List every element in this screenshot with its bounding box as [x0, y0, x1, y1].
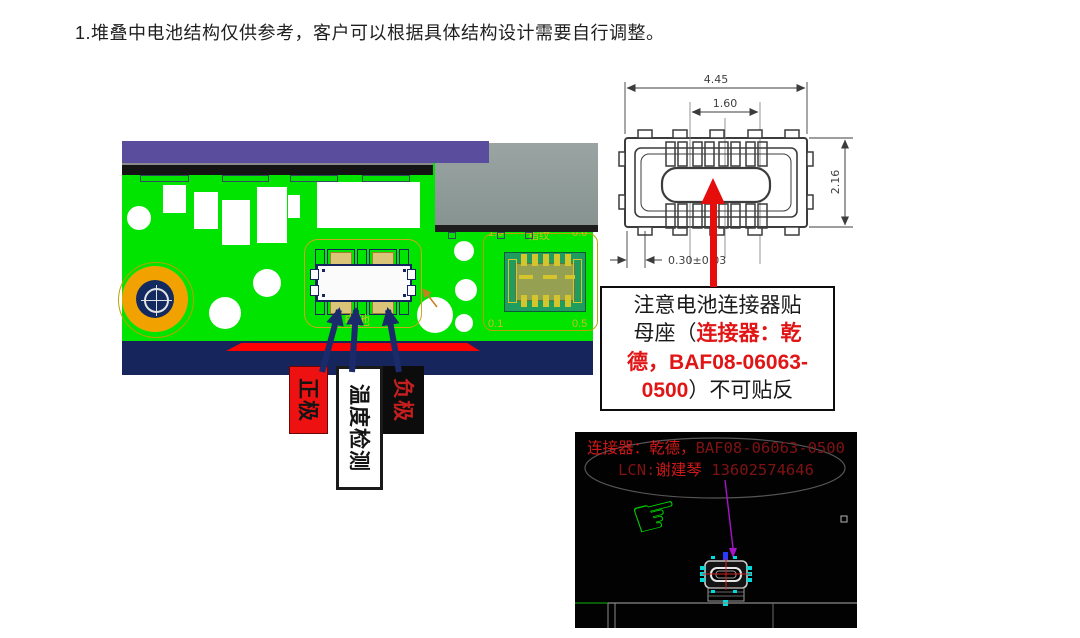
- silkscreen-label: 电池: [344, 310, 370, 329]
- component-outline: [222, 200, 250, 245]
- page-title: 1.堆叠中电池结构仅供参考，客户可以根据具体结构设计需要自行调整。: [75, 19, 665, 45]
- document-page: 1.堆叠中电池结构仅供参考，客户可以根据具体结构设计需要自行调整。: [0, 0, 1080, 638]
- dim-width-label: 4.45: [704, 73, 729, 86]
- battery-cell-edge: [435, 225, 598, 232]
- pad-notch: [222, 175, 269, 182]
- label-positive: 正极: [290, 367, 327, 433]
- drill-hole: [209, 297, 241, 329]
- connector-tab: [310, 285, 319, 296]
- position-marker-icon: [144, 288, 169, 313]
- board-red-gasket: [226, 343, 480, 351]
- component-outline: [317, 182, 420, 228]
- silkscreen-label: 0.5: [572, 318, 587, 330]
- fingerprint-connector-body: [504, 252, 586, 312]
- dim-pitch-label: 1.60: [713, 97, 738, 110]
- label-negative-text: 负极: [389, 378, 419, 422]
- pad-tick: [448, 232, 456, 239]
- cad-screenshot: 连接器：乾德，BAF08-06063-0500LCN:谢建琴 136025746…: [575, 432, 857, 628]
- component-outline: [194, 192, 218, 229]
- drill-hole: [454, 241, 474, 261]
- battery-connector-body: [316, 264, 412, 302]
- cad-connector-footprint: [700, 552, 752, 606]
- dim-height-label: 2.16: [829, 170, 842, 195]
- callout-arrow-stem: [710, 202, 717, 287]
- label-positive-text: 正极: [294, 378, 324, 422]
- label-temp-sense: 温度检测: [337, 367, 382, 489]
- pad-tick: [497, 232, 505, 239]
- pad-notch: [362, 175, 410, 182]
- drill-hole: [417, 297, 453, 333]
- pad-notch: [290, 175, 338, 182]
- connector-note-box: 注意电池连接器贴母座（连接器：乾德，BAF08-06063-0500）不可贴反: [600, 286, 835, 411]
- connector-tab: [407, 269, 416, 280]
- connector-dimension-drawing: 4.45 1.60 2.16 0.30±0.03: [606, 68, 911, 280]
- cad-select-square: [841, 516, 847, 522]
- connector-tab: [407, 285, 416, 296]
- connector-tab: [310, 269, 319, 280]
- component-outline: [163, 185, 186, 213]
- drill-hole: [455, 314, 473, 332]
- label-temp-sense-text: 温度检测: [345, 384, 375, 472]
- pad-notch: [140, 175, 189, 182]
- dim-offset-label: 0.30±0.03: [668, 254, 726, 267]
- label-negative: 负极: [384, 367, 423, 433]
- drill-hole: [253, 269, 281, 297]
- pad-tick: [525, 232, 533, 239]
- drill-hole: [455, 279, 477, 301]
- drill-hole: [127, 206, 151, 230]
- callout-arrow-head: [701, 178, 725, 204]
- silkscreen-label: 0.1: [488, 318, 503, 330]
- component-outline: [257, 187, 287, 243]
- board-edge-strip: [122, 163, 433, 175]
- cad-annotation-text: 连接器：乾德，BAF08-06063-0500LCN:谢建琴 136025746…: [575, 437, 857, 481]
- pcb-figure: 1.0 指纹 0.6 0.1 0.5 电池 正极 温度检测 负极: [122, 140, 602, 490]
- stiffener-bar: [122, 141, 489, 163]
- component-outline: [288, 195, 300, 218]
